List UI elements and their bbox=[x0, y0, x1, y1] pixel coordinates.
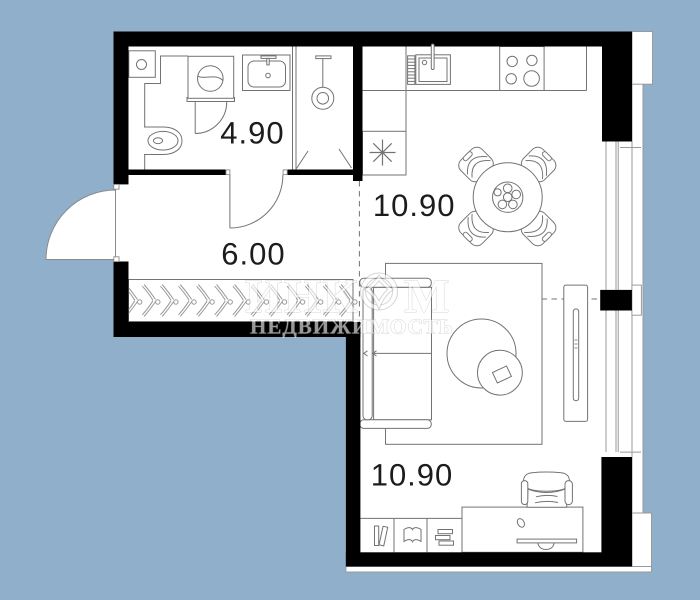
svg-text:10.90: 10.90 bbox=[373, 188, 456, 223]
svg-text:6.00: 6.00 bbox=[221, 237, 285, 272]
svg-text:4.90: 4.90 bbox=[220, 116, 284, 151]
svg-text:10.90: 10.90 bbox=[371, 458, 454, 493]
svg-text:НЕДВИЖИМОСТЬ: НЕДВИЖИМОСТЬ bbox=[250, 315, 454, 339]
